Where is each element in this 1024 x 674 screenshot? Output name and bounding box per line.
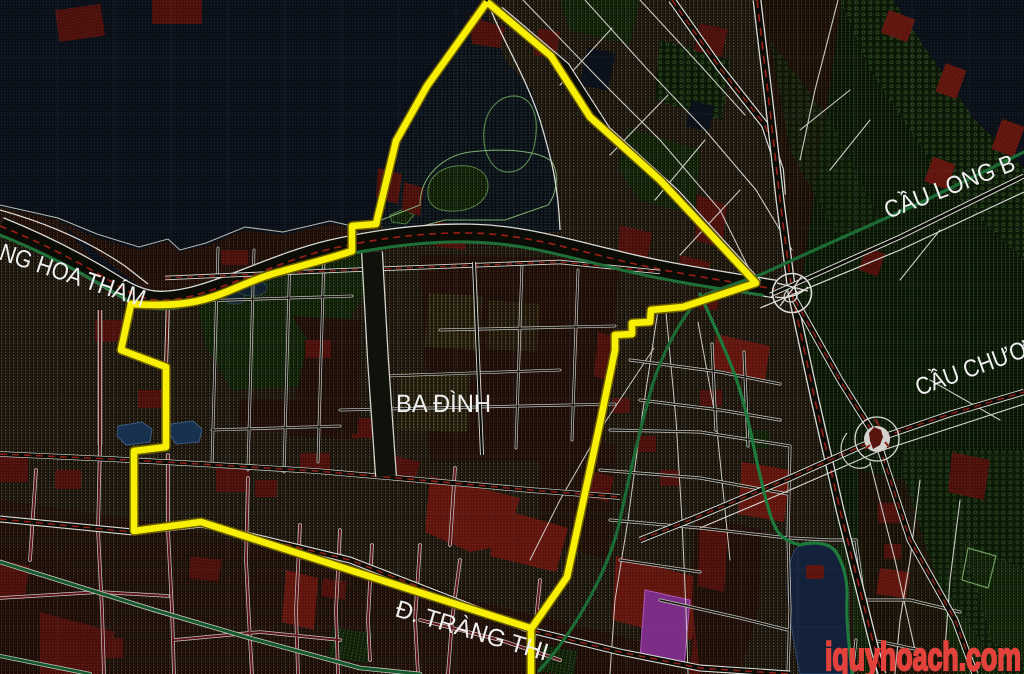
svg-text:BA ĐÌNH: BA ĐÌNH xyxy=(396,390,491,418)
svg-text:iquyhoach.com: iquyhoach.com xyxy=(825,635,1021,674)
